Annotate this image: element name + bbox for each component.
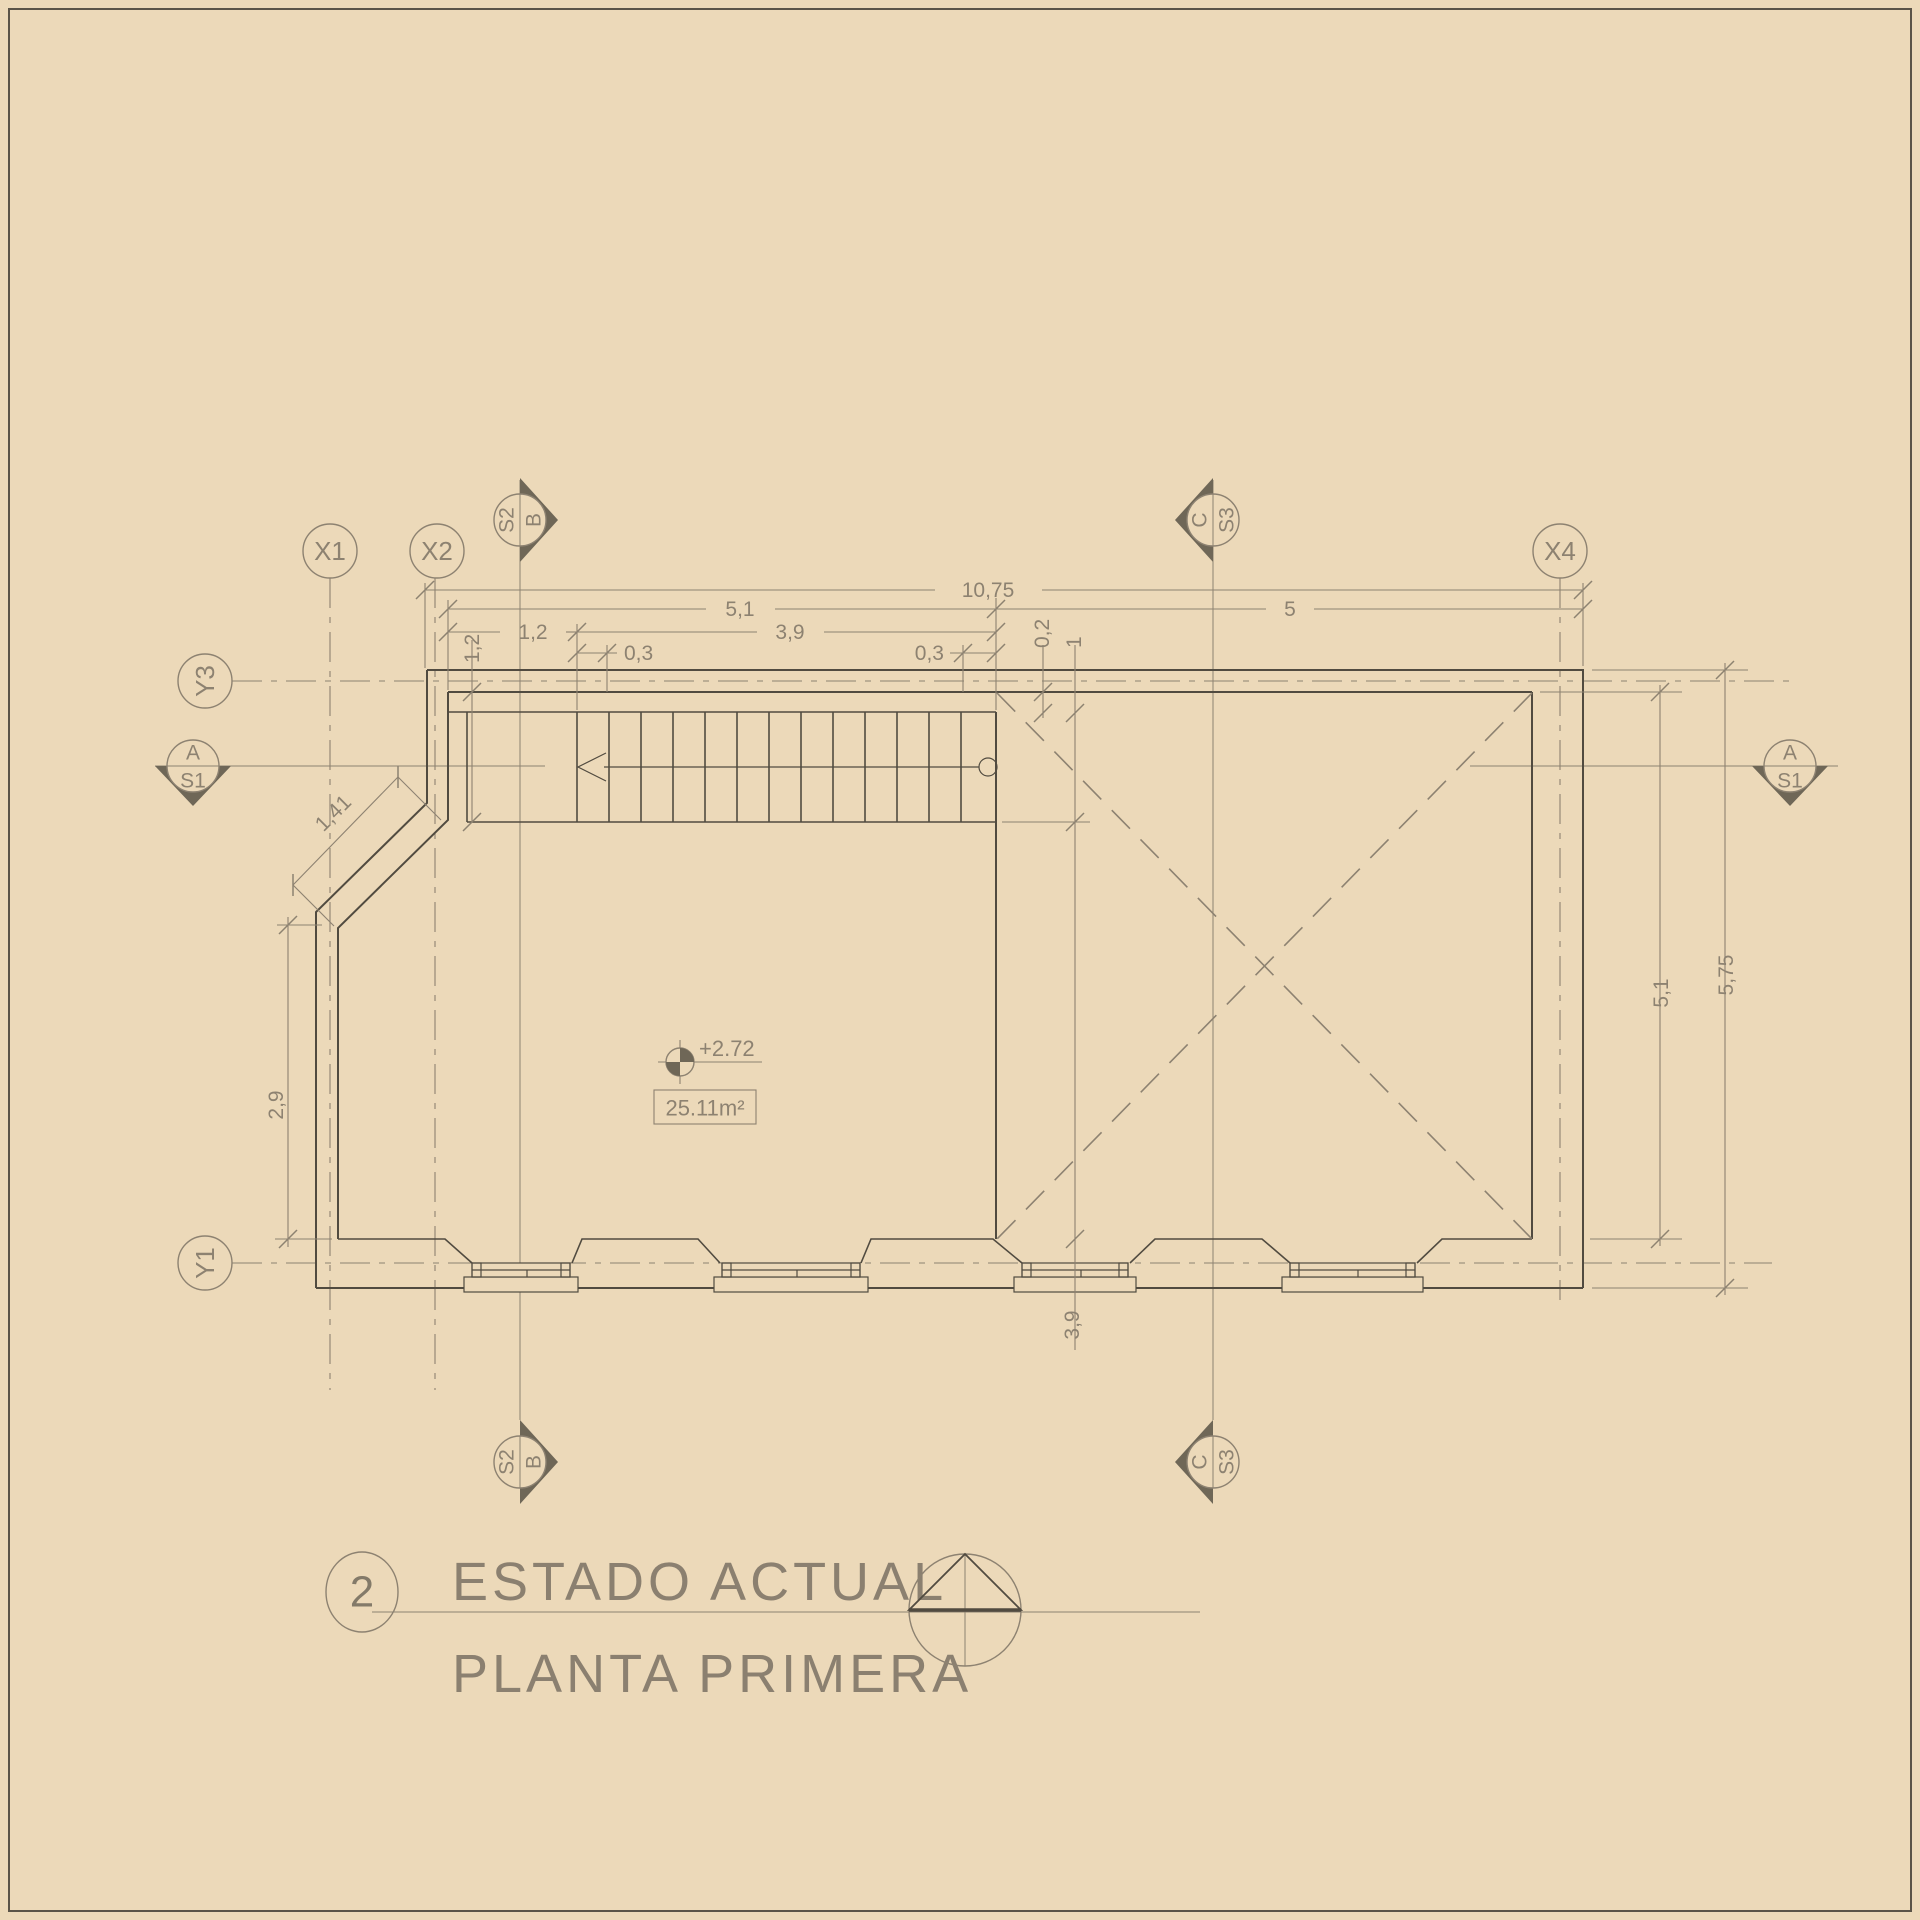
svg-text:S1: S1: [1777, 770, 1803, 793]
svg-text:A: A: [1783, 742, 1797, 765]
window-frame: [1290, 1263, 1415, 1277]
dim-landing: 1,2: [518, 621, 547, 644]
floor-plan-sheet: 10,75 5,1 5 1,2 3,9 0,3 0,3 0,2 1 3,9 1,…: [0, 0, 1920, 1920]
window-sill: [1282, 1277, 1423, 1292]
svg-text:B: B: [523, 513, 546, 527]
svg-text:C: C: [1189, 1454, 1212, 1469]
grid-marker-x2: X2: [410, 524, 464, 578]
dim-right-span: 5: [1284, 598, 1296, 621]
svg-text:Y3: Y3: [190, 665, 220, 697]
svg-text:X4: X4: [1544, 536, 1576, 566]
dim-stair-width: 1: [1063, 636, 1086, 648]
svg-text:C: C: [1189, 512, 1212, 527]
walls: [316, 670, 1583, 1288]
level-marker: +2.72: [658, 1036, 762, 1084]
section-marker-as1-left: A S1: [155, 740, 231, 806]
grid-marker-x4: X4: [1533, 524, 1587, 578]
window-frame: [722, 1263, 860, 1277]
svg-text:S2: S2: [496, 1449, 519, 1475]
svg-text:X1: X1: [314, 536, 346, 566]
title-number: 2: [350, 1568, 374, 1617]
void-cross: [997, 693, 1532, 1239]
section-marker-s2b-top: S2 B: [494, 478, 558, 562]
dim-tread-right: 0,3: [915, 642, 944, 665]
window-frame: [472, 1263, 570, 1277]
dim-stair-run: 3,9: [775, 621, 804, 644]
dim-tread-left: 0,3: [624, 642, 653, 665]
dim-total-width: 10,75: [962, 579, 1015, 602]
section-marker-as1-right: A S1: [1752, 740, 1828, 806]
bottom-wall-inner-face: [338, 1239, 1532, 1263]
svg-text:S3: S3: [1216, 507, 1239, 533]
title-line2: PLANTA PRIMERA: [452, 1644, 972, 1704]
staircase: [577, 712, 997, 822]
svg-text:B: B: [523, 1455, 546, 1469]
section-marker-cs3-bottom: C S3: [1175, 1420, 1239, 1504]
svg-text:A: A: [186, 742, 200, 765]
level-value: +2.72: [699, 1036, 755, 1061]
section-marker-s2b-bottom: S2 B: [494, 1420, 558, 1504]
svg-text:X2: X2: [421, 536, 453, 566]
svg-text:Y1: Y1: [190, 1247, 220, 1279]
grid-markers: X1 X2 X4 Y3 Y1: [178, 524, 1587, 1290]
dim-left-span: 5,1: [725, 598, 754, 621]
svg-text:S3: S3: [1216, 1449, 1239, 1475]
window-sill: [714, 1277, 868, 1292]
svg-text:S2: S2: [496, 507, 519, 533]
dim-mid-height: 3,9: [1061, 1310, 1084, 1339]
dim-wall-offset: 0,2: [1031, 619, 1054, 648]
dimensions: 10,75 5,1 5 1,2 3,9 0,3 0,3 0,2 1 3,9 1,…: [265, 579, 1748, 1350]
dim-right-outer-height: 5,75: [1715, 955, 1738, 996]
dim-right-inner-height: 5,1: [1650, 978, 1673, 1007]
area-value: 25.11m²: [665, 1096, 744, 1121]
dim-stair-width-left: 1,2: [461, 634, 484, 663]
grid-marker-y1: Y1: [178, 1236, 232, 1290]
title-block: 2 ESTADO ACTUAL PLANTA PRIMERA: [326, 1552, 1200, 1704]
section-marker-cs3-top: C S3: [1175, 478, 1239, 562]
grid-lines: [232, 578, 1790, 1390]
floor-plan-drawing: 10,75 5,1 5 1,2 3,9 0,3 0,3 0,2 1 3,9 1,…: [0, 0, 1920, 1920]
svg-text:S1: S1: [180, 770, 206, 793]
sheet-border: [9, 9, 1911, 1911]
area-label: 25.11m²: [654, 1090, 756, 1124]
grid-marker-y3: Y3: [178, 654, 232, 708]
window-sill: [464, 1277, 578, 1292]
title-line1: ESTADO ACTUAL: [452, 1552, 947, 1612]
grid-marker-x1: X1: [303, 524, 357, 578]
dim-left-height: 2,9: [265, 1090, 288, 1119]
north-arrow-icon: [909, 1554, 1021, 1666]
dim-chamfer: 1,41: [311, 791, 356, 836]
